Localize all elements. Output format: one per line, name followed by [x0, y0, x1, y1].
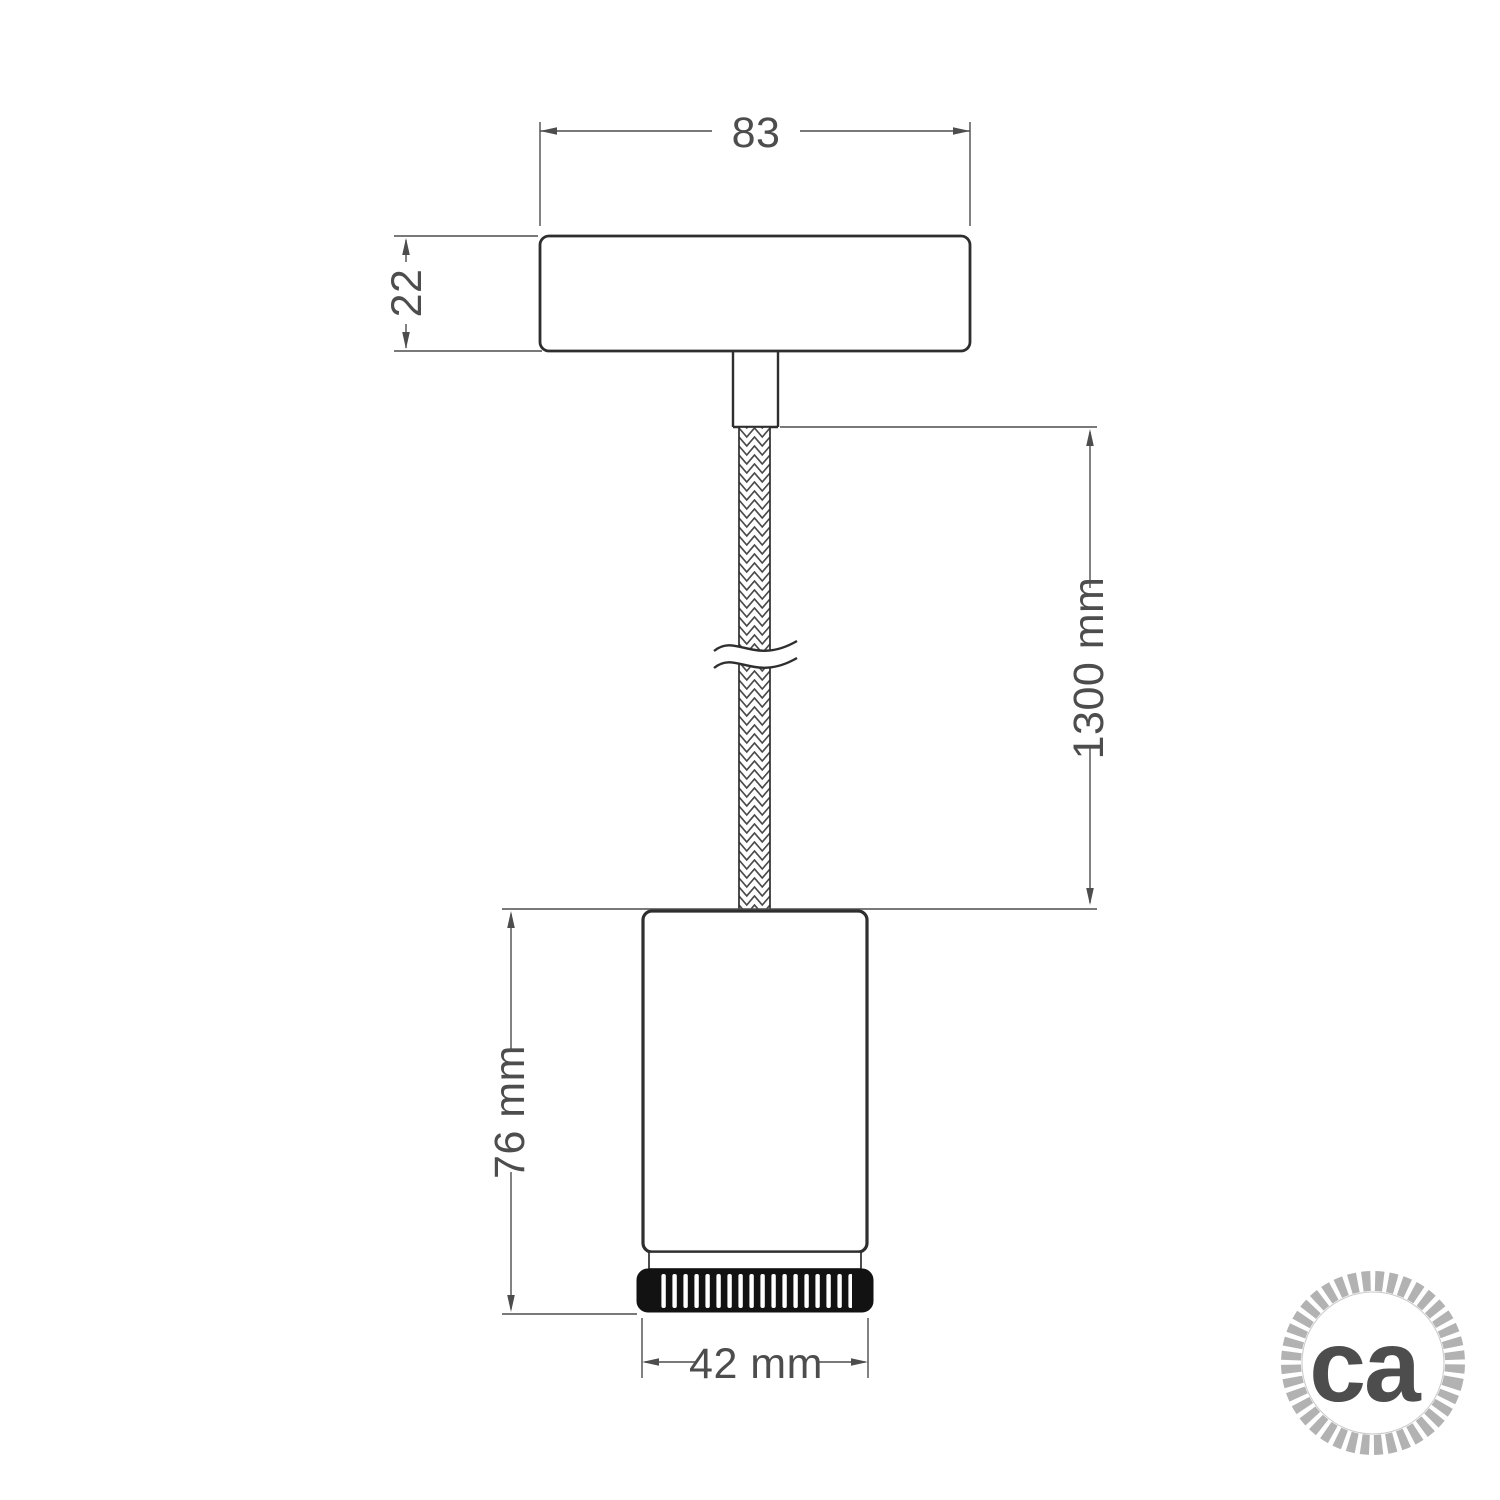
dim-canopy-width: 83	[540, 109, 970, 226]
drawing-canvas: 83 22 1300 mm 76 mm 42 mm	[0, 0, 1500, 1500]
ceiling-canopy	[540, 236, 970, 351]
spotlight-body	[637, 911, 873, 1312]
dim-spotlight-height: 76 mm	[486, 911, 637, 1314]
extension-lines	[502, 427, 1097, 909]
dim-canopy-height: 22	[383, 236, 542, 351]
spotlight-lip	[649, 1252, 861, 1269]
stem-outline	[733, 351, 778, 427]
canopy-body	[540, 236, 970, 351]
logo-text: ca	[1309, 1309, 1422, 1423]
dim-spotlight-diameter: 42 mm	[642, 1318, 868, 1388]
spotlight-height-label: 76 mm	[486, 1045, 534, 1179]
dim-cable-length: 1300 mm	[502, 427, 1113, 909]
ring-slots	[658, 1274, 852, 1308]
brand-logo: ca	[1276, 1266, 1471, 1461]
canopy-width-label: 83	[732, 109, 781, 157]
cable-length-label: 1300 mm	[1065, 577, 1113, 760]
canopy-height-label: 22	[383, 269, 431, 318]
spotlight-knurled-ring	[637, 1269, 873, 1312]
spotlight-diameter-label: 42 mm	[689, 1340, 823, 1388]
technical-drawing: 83 22 1300 mm 76 mm 42 mm	[0, 0, 1500, 1500]
cable-braid	[739, 427, 770, 911]
cable-stem	[733, 351, 778, 427]
spotlight-cylinder	[643, 911, 867, 1252]
pendant-cable	[714, 427, 797, 911]
